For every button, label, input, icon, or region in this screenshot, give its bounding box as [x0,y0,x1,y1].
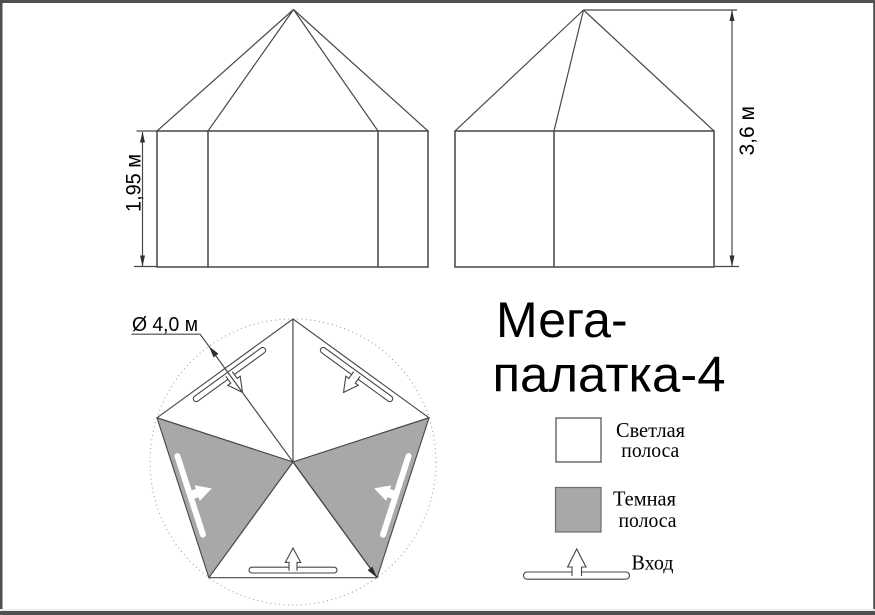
svg-text:полоса: полоса [619,508,678,532]
svg-text:полоса: полоса [621,438,680,462]
svg-text:Ø 4,0 м: Ø 4,0 м [132,314,198,336]
svg-text:1,95 м: 1,95 м [123,154,146,212]
svg-text:Мега-: Мега- [496,292,628,348]
svg-text:Вход: Вход [632,550,674,574]
svg-text:3,6 м: 3,6 м [736,106,759,155]
svg-text:палатка-4: палатка-4 [493,347,726,403]
